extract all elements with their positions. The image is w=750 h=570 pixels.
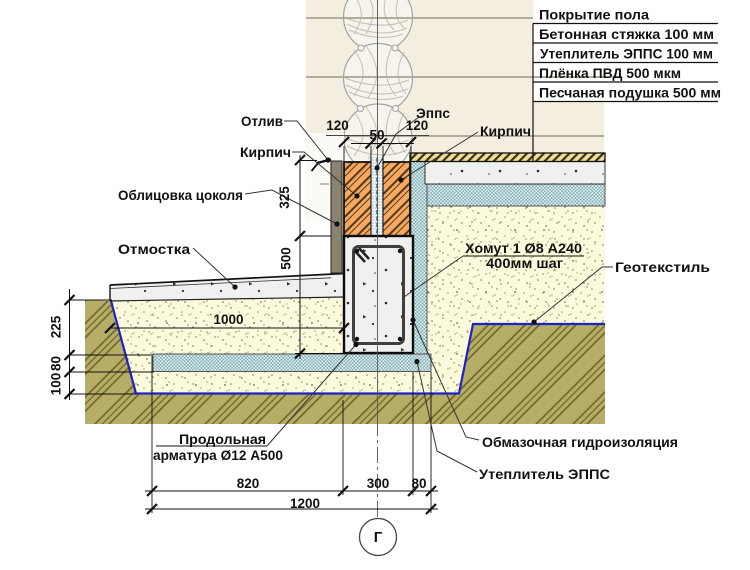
svg-text:Песчаная подушка 500 мм: Песчаная подушка 500 мм (539, 86, 721, 101)
svg-text:400мм шаг: 400мм шаг (486, 256, 563, 271)
svg-text:80: 80 (49, 356, 64, 371)
svg-text:300: 300 (367, 476, 390, 491)
svg-text:Облицовка цоколя: Облицовка цоколя (118, 188, 243, 203)
svg-text:50: 50 (369, 128, 384, 143)
svg-text:Бетонная стяжка 100 мм: Бетонная стяжка 100 мм (539, 27, 714, 42)
svg-text:Кирпич: Кирпич (480, 124, 531, 139)
svg-text:500: 500 (279, 247, 294, 270)
svg-text:1000: 1000 (213, 312, 243, 327)
svg-text:120: 120 (326, 118, 349, 133)
svg-text:80: 80 (411, 476, 426, 491)
svg-text:Г: Г (374, 529, 383, 546)
svg-text:325: 325 (277, 186, 292, 209)
svg-text:1200: 1200 (290, 496, 320, 511)
svg-text:Покрытие пола: Покрытие пола (539, 8, 650, 23)
svg-text:225: 225 (49, 315, 64, 338)
svg-text:Обмазочная гидроизоляция: Обмазочная гидроизоляция (482, 435, 678, 450)
svg-text:Геотекстиль: Геотекстиль (615, 260, 710, 275)
svg-text:100: 100 (49, 373, 64, 396)
svg-text:Отлив: Отлив (241, 114, 283, 129)
svg-text:820: 820 (237, 476, 260, 491)
svg-text:Хомут 1 Ø8 А240: Хомут 1 Ø8 А240 (465, 241, 582, 256)
svg-text:Отмостка: Отмостка (118, 242, 191, 257)
svg-text:Плёнка ПВД 500 мкм: Плёнка ПВД 500 мкм (539, 66, 681, 81)
svg-text:Кирпич: Кирпич (240, 145, 291, 160)
svg-text:Продольная: Продольная (179, 432, 266, 447)
svg-text:арматура Ø12 А500: арматура Ø12 А500 (153, 448, 283, 463)
svg-text:Утеплитель ЭППС: Утеплитель ЭППС (479, 467, 610, 482)
svg-text:Утеплитель ЭППС 100 мм: Утеплитель ЭППС 100 мм (540, 47, 713, 62)
svg-text:120: 120 (406, 118, 429, 133)
